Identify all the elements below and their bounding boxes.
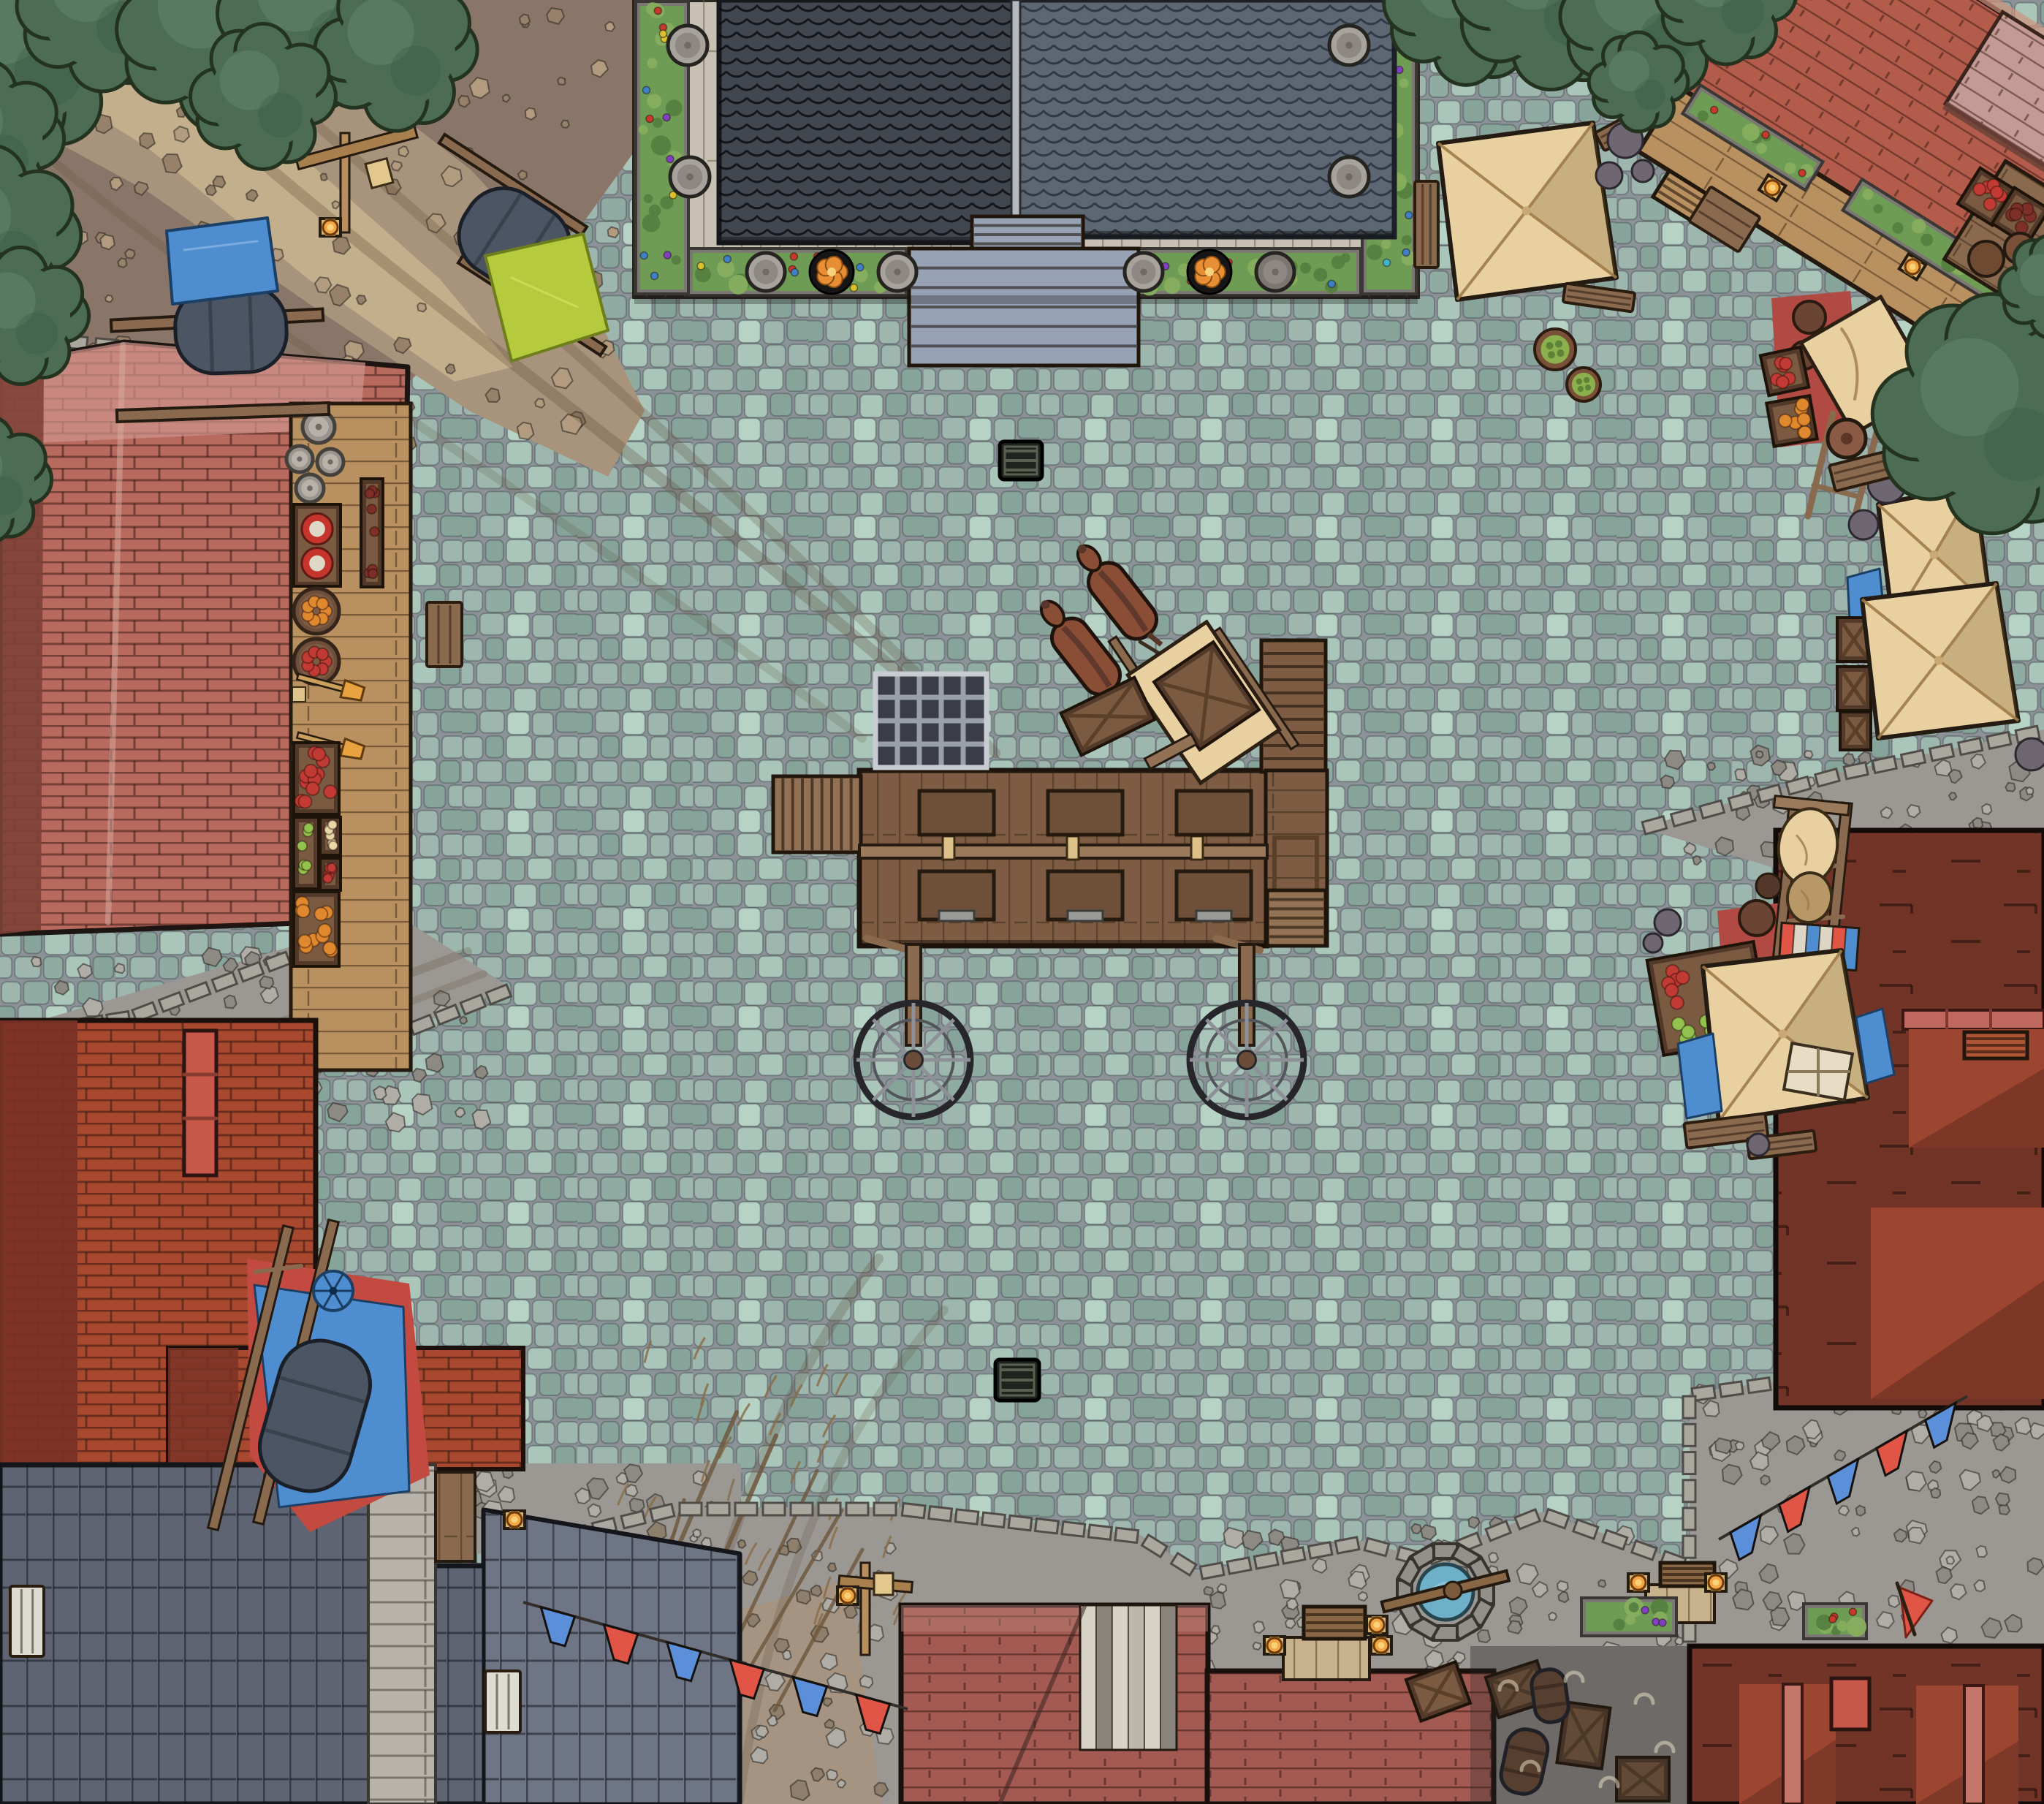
flower-pot-orange[interactable] xyxy=(1188,250,1231,294)
cellar-door[interactable] xyxy=(436,1472,475,1561)
torch[interactable] xyxy=(504,1511,525,1528)
blue-parasol[interactable] xyxy=(314,1271,353,1311)
terrace-steps-main[interactable] xyxy=(909,249,1139,365)
breaking-wheel[interactable] xyxy=(1190,1003,1304,1117)
crate-berries[interactable] xyxy=(320,858,341,890)
breaking-wheel[interactable] xyxy=(856,1003,970,1117)
market-tent-east[interactable] xyxy=(1862,583,2018,738)
roof-divider xyxy=(1011,0,1020,241)
rock xyxy=(1596,162,1622,189)
rock xyxy=(2015,738,2044,770)
clay-pot[interactable] xyxy=(1756,873,1781,898)
beam-peg xyxy=(1067,836,1079,860)
stone-planter[interactable] xyxy=(878,253,916,291)
crate-plums[interactable] xyxy=(361,479,383,587)
stone-planter[interactable] xyxy=(670,157,710,197)
sewer-grate-south[interactable] xyxy=(995,1360,1039,1401)
steps-south[interactable] xyxy=(1304,1607,1365,1639)
chimney xyxy=(184,1031,216,1175)
price-tag xyxy=(292,687,305,702)
building-southwest-dark xyxy=(0,1020,77,1468)
sign-placard xyxy=(365,159,393,189)
barrel[interactable] xyxy=(1969,241,2004,276)
crate-oranges[interactable] xyxy=(1766,395,1817,447)
chimney xyxy=(1831,1678,1869,1729)
stone-planter[interactable] xyxy=(668,26,707,65)
crate[interactable] xyxy=(1837,667,1871,710)
blue-tarp[interactable] xyxy=(167,218,278,304)
stone-planter[interactable] xyxy=(1329,157,1369,197)
flower-bed-south xyxy=(1139,249,1361,296)
torch[interactable] xyxy=(1706,1574,1726,1591)
inner-steps xyxy=(1964,1032,2027,1058)
white-bench[interactable] xyxy=(10,1586,44,1656)
clay-pot[interactable] xyxy=(1793,301,1825,333)
building-slate-east xyxy=(484,1510,740,1804)
flower-bed-south xyxy=(688,249,906,295)
torch[interactable] xyxy=(1264,1637,1285,1654)
crate-greens[interactable] xyxy=(294,817,319,889)
terrace-edge-shadow xyxy=(634,295,1418,304)
white-bench[interactable] xyxy=(485,1671,520,1732)
stone-jar[interactable] xyxy=(317,449,343,475)
gallows-stairs-lower[interactable] xyxy=(1267,890,1326,946)
slate-ridge xyxy=(368,1465,436,1804)
roof-beam xyxy=(1903,1010,2044,1029)
rock xyxy=(1849,510,1878,539)
plant-pot[interactable] xyxy=(1535,329,1576,370)
beam-peg xyxy=(943,836,954,860)
crate-apples[interactable] xyxy=(1760,347,1809,395)
trapdoor[interactable] xyxy=(1048,791,1122,835)
rock xyxy=(1747,1134,1769,1156)
map-viewport[interactable] xyxy=(0,0,2044,1804)
garden-bed xyxy=(1804,1604,1866,1639)
crate-bread[interactable] xyxy=(320,817,341,855)
roof-shadow xyxy=(719,237,1013,244)
garden-bed xyxy=(1581,1598,1676,1636)
crate-carrots[interactable] xyxy=(294,892,339,966)
trapdoor[interactable] xyxy=(919,791,994,835)
torch[interactable] xyxy=(1371,1637,1391,1654)
tree xyxy=(1589,32,1688,132)
stone-planter[interactable] xyxy=(1329,26,1369,65)
torch[interactable] xyxy=(1628,1574,1649,1591)
beam-peg xyxy=(1191,836,1203,860)
clay-pot[interactable] xyxy=(1739,901,1774,936)
crate-tomatoes[interactable] xyxy=(294,743,339,814)
door-south[interactable] xyxy=(1283,1637,1369,1680)
battle-map-canvas[interactable] xyxy=(0,0,2044,1804)
trapdoor-latch xyxy=(1196,911,1231,921)
trapdoor-latch xyxy=(939,911,974,921)
sewer-grate-north[interactable] xyxy=(1000,441,1042,480)
trapdoor-latch xyxy=(1068,911,1103,921)
stone-jar[interactable] xyxy=(286,446,313,472)
crossbeam xyxy=(859,845,1267,858)
sign-placard xyxy=(874,1573,893,1595)
rock xyxy=(1632,160,1654,182)
crate-cheese-wheels[interactable] xyxy=(294,504,341,586)
stone-planter[interactable] xyxy=(1256,253,1294,291)
trapdoor[interactable] xyxy=(1177,791,1251,835)
stone-planter[interactable] xyxy=(1125,253,1163,291)
basket-oranges[interactable] xyxy=(294,588,339,634)
plant-pot[interactable] xyxy=(1567,368,1600,401)
chimney-column xyxy=(1964,1686,1983,1804)
rock xyxy=(1654,909,1681,936)
torch[interactable] xyxy=(320,219,341,236)
market-tent-north[interactable] xyxy=(1438,123,1616,300)
blue-tarp[interactable] xyxy=(1678,1034,1722,1118)
roof-skylight-stripes xyxy=(1080,1605,1177,1750)
gallows-ramp[interactable] xyxy=(773,776,861,852)
rock xyxy=(1644,933,1663,952)
wheel-hub xyxy=(1841,433,1853,444)
pavilion-roof-west xyxy=(719,0,1013,243)
alley-shade xyxy=(1470,1646,1690,1804)
torch[interactable] xyxy=(837,1587,858,1604)
wooden-bench[interactable] xyxy=(427,602,462,667)
stone-planter[interactable] xyxy=(747,253,785,291)
chimney-column xyxy=(1783,1684,1802,1804)
stone-jar[interactable] xyxy=(296,474,324,502)
flower-pot-orange[interactable] xyxy=(810,250,854,294)
bench[interactable] xyxy=(1415,181,1438,268)
crate[interactable] xyxy=(1840,712,1871,750)
torch[interactable] xyxy=(1367,1616,1387,1634)
